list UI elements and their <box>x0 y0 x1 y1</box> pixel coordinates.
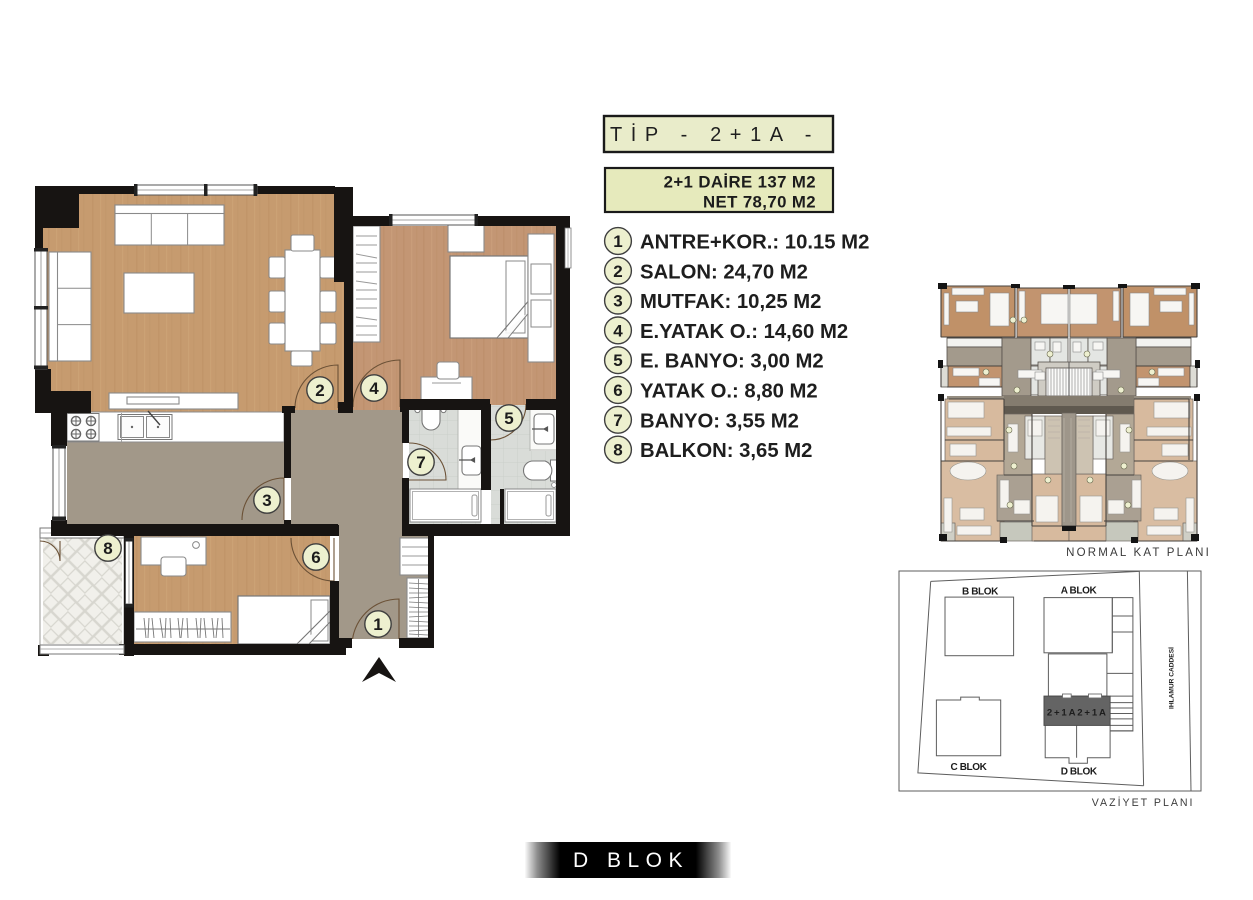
svg-text:D BLOK: D BLOK <box>1061 767 1098 778</box>
svg-text:BALKON: 3,65 M2: BALKON: 3,65 M2 <box>640 440 812 462</box>
svg-text:2: 2 <box>613 262 622 281</box>
svg-text:5: 5 <box>613 351 622 370</box>
svg-text:IHLAMUR CADDESİ: IHLAMUR CADDESİ <box>1168 647 1176 709</box>
svg-text:1: 1 <box>613 232 622 251</box>
svg-text:A BLOK: A BLOK <box>1061 586 1098 597</box>
svg-text:2+1A2+1A: 2+1A2+1A <box>1047 708 1108 719</box>
svg-text:BANYO: 3,55 M2: BANYO: 3,55 M2 <box>640 410 799 432</box>
svg-text:8: 8 <box>103 539 112 558</box>
svg-text:6: 6 <box>613 381 622 400</box>
svg-text:3: 3 <box>613 292 622 311</box>
svg-text:MUTFAK: 10,25 M2: MUTFAK: 10,25 M2 <box>640 291 821 313</box>
svg-text:NET 78,70 M2: NET 78,70 M2 <box>703 193 816 212</box>
svg-text:E. BANYO: 3,00 M2: E. BANYO: 3,00 M2 <box>640 351 824 373</box>
svg-text:2+1 DAİRE 137 M2: 2+1 DAİRE 137 M2 <box>664 173 816 192</box>
svg-text:C BLOK: C BLOK <box>951 762 988 773</box>
svg-text:E.YATAK O.: 14,60 M2: E.YATAK O.: 14,60 M2 <box>640 321 848 343</box>
svg-text:YATAK O.: 8,80 M2: YATAK O.: 8,80 M2 <box>640 381 818 403</box>
svg-text:3: 3 <box>262 491 271 510</box>
svg-text:NORMAL KAT PLANI: NORMAL KAT PLANI <box>1066 547 1211 559</box>
svg-text:7: 7 <box>613 411 622 430</box>
svg-text:4: 4 <box>369 379 379 398</box>
svg-text:1: 1 <box>373 615 382 634</box>
svg-text:ANTRE+KOR.: 10.15 M2: ANTRE+KOR.: 10.15 M2 <box>640 232 869 254</box>
svg-text:SALON: 24,70 M2: SALON: 24,70 M2 <box>640 261 808 283</box>
svg-text:4: 4 <box>613 321 623 340</box>
svg-text:VAZİYET PLANI: VAZİYET PLANI <box>1092 796 1195 809</box>
svg-text:TİP - 2+1A -: TİP - 2+1A - <box>610 123 820 146</box>
svg-text:B BLOK: B BLOK <box>962 587 999 598</box>
svg-text:7: 7 <box>416 453 425 472</box>
svg-text:6: 6 <box>311 548 320 567</box>
svg-text:2: 2 <box>315 381 324 400</box>
svg-text:5: 5 <box>504 409 513 428</box>
svg-text:8: 8 <box>613 441 622 460</box>
svg-text:D BLOK: D BLOK <box>573 849 689 872</box>
